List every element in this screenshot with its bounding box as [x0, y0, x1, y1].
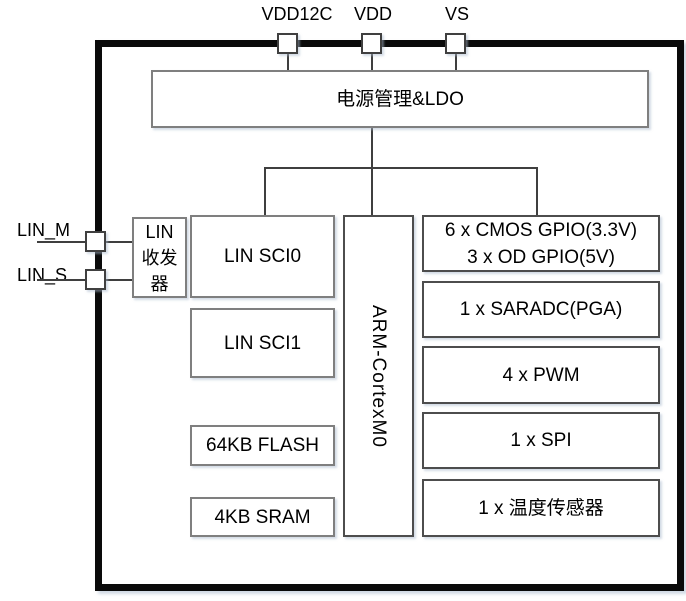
pin-label-vs: VS [402, 4, 512, 24]
block-flash: 64KB FLASH [190, 425, 335, 466]
wire-lin-s-external [37, 279, 86, 281]
block-pwm-label: 4 x PWM [502, 362, 579, 389]
connector-bus-to-gpio [536, 168, 538, 215]
connector-vs-to-power [455, 54, 457, 71]
block-flash-label: 64KB FLASH [206, 432, 319, 459]
block-saradc: 1 x SARADC(PGA) [422, 281, 660, 338]
block-temperature-sensor: 1 x 温度传感器 [422, 479, 660, 537]
connector-bus-horizontal [264, 167, 538, 169]
block-saradc-label: 1 x SARADC(PGA) [460, 296, 623, 323]
pin-vdd [361, 33, 382, 54]
block-lin-sci1: LIN SCI1 [190, 308, 335, 378]
block-lin-transceiver-line2: 收发 [142, 245, 178, 271]
pin-label-lin-s: LIN_S [17, 265, 67, 285]
block-gpio-line2: 3 x OD GPIO(5V) [467, 244, 615, 271]
pin-vdd12c [277, 33, 298, 54]
block-spi: 1 x SPI [422, 412, 660, 469]
block-lin-sci0: LIN SCI0 [190, 215, 335, 298]
block-lin-transceiver: LIN 收发 器 [132, 217, 187, 298]
chip-block-diagram: VDD12C VDD VS LIN_M LIN_S 电源管理&LDO LIN 收… [0, 0, 686, 601]
block-lin-transceiver-line1: LIN [145, 219, 173, 245]
block-spi-label: 1 x SPI [510, 427, 571, 454]
pin-lin-m [85, 231, 106, 252]
block-lin-sci0-label: LIN SCI0 [224, 243, 301, 270]
pin-vs [445, 33, 466, 54]
block-lin-transceiver-line3: 器 [151, 271, 169, 297]
wire-lin-m-internal [106, 241, 132, 243]
block-sram: 4KB SRAM [190, 497, 335, 537]
connector-vdd12c-to-power [287, 54, 289, 71]
block-gpio: 6 x CMOS GPIO(3.3V) 3 x OD GPIO(5V) [422, 215, 660, 272]
connector-bus-to-sci0 [264, 168, 266, 215]
block-sram-label: 4KB SRAM [214, 504, 310, 531]
wire-lin-m-external [37, 241, 86, 243]
pin-label-lin-m: LIN_M [17, 220, 70, 240]
wire-lin-s-internal [106, 279, 132, 281]
block-arm-cortex-m0-label: ARM-CortexM0 [365, 305, 392, 448]
block-arm-cortex-m0: ARM-CortexM0 [343, 215, 414, 537]
block-gpio-line1: 6 x CMOS GPIO(3.3V) [445, 217, 637, 244]
pin-lin-s [85, 269, 106, 290]
connector-vdd-to-power [371, 54, 373, 71]
block-pwm: 4 x PWM [422, 346, 660, 404]
connector-power-to-cpu [371, 128, 373, 215]
block-temperature-sensor-label: 1 x 温度传感器 [478, 495, 604, 522]
block-power-management-ldo: 电源管理&LDO [151, 70, 649, 128]
block-lin-sci1-label: LIN SCI1 [224, 330, 301, 357]
block-power-label: 电源管理&LDO [336, 86, 464, 113]
